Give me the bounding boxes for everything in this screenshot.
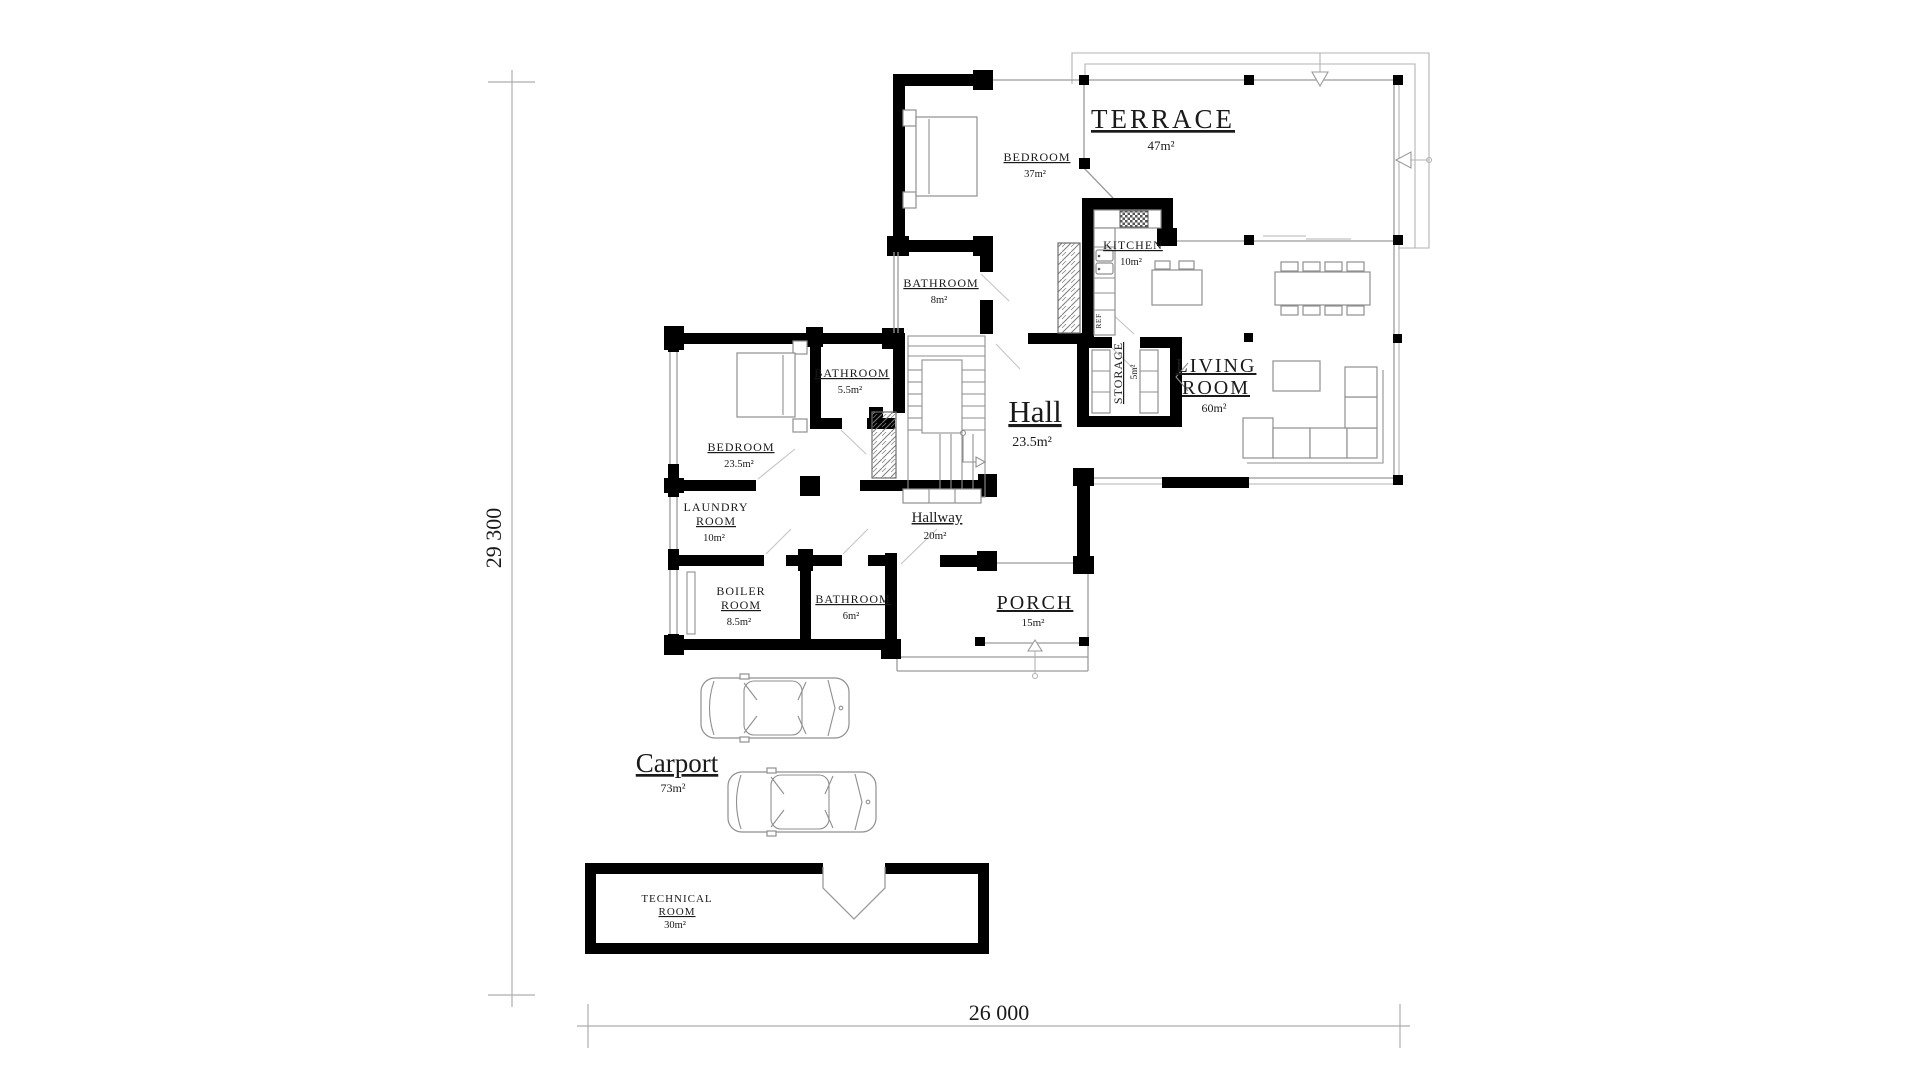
- room-area-bathroom-6: 6m²: [843, 611, 860, 622]
- porch-outline: [897, 563, 1088, 671]
- room-area-bathroom-8: 8m²: [931, 295, 948, 306]
- entry-arrow-porch-icon: [1028, 640, 1042, 679]
- room-label-terrace: TERRACE: [1091, 104, 1235, 134]
- room-label-hall: Hall: [1008, 394, 1061, 429]
- room-label-carport: Carport: [636, 748, 719, 778]
- kitchen-island-icon: [1152, 261, 1202, 305]
- room-label-storage: STORAGE: [1111, 342, 1125, 404]
- room-label-laundry-2: ROOM: [696, 514, 736, 528]
- entry-arrow-right-icon: [1396, 152, 1432, 168]
- dimension-height: 29 300: [481, 70, 535, 1007]
- room-label-technical-2: ROOM: [658, 906, 695, 918]
- room-area-porch: 15m²: [1022, 617, 1046, 629]
- floor-plan-page: 29 300 26 000: [0, 0, 1920, 1080]
- room-area-storage: 5m²: [1130, 364, 1140, 379]
- room-label-technical-1: TECHNICAL: [641, 893, 712, 905]
- room-label-porch: PORCH: [997, 592, 1074, 614]
- storage-shelves: [1092, 350, 1158, 413]
- dimension-height-label: 29 300: [481, 508, 506, 569]
- room-area-living: 60m²: [1202, 401, 1227, 415]
- hallway-cabinet-icon: [903, 489, 981, 503]
- fridge-label: REF: [1094, 313, 1103, 328]
- room-label-bathroom-55: BATHROOM: [814, 366, 889, 380]
- entry-arrow-top-icon: [1312, 53, 1328, 86]
- room-area-bedroom-left: 23.5m²: [724, 459, 754, 470]
- room-label-bathroom-8: BATHROOM: [903, 276, 978, 290]
- room-area-carport: 73m²: [661, 781, 686, 795]
- room-label-boiler-2: ROOM: [721, 598, 761, 612]
- room-label-kitchen: KITCHEN: [1103, 238, 1163, 252]
- room-area-technical: 30m²: [664, 920, 686, 931]
- room-area-bedroom-top: 37m²: [1024, 169, 1046, 180]
- room-area-bathroom-55: 5.5m²: [838, 385, 862, 396]
- room-label-living-2: ROOM: [1182, 377, 1250, 399]
- dimension-width: 26 000: [577, 1000, 1410, 1048]
- room-area-laundry: 10m²: [703, 533, 725, 544]
- wardrobe-icon: [872, 412, 896, 478]
- car-icon: [701, 674, 849, 742]
- room-label-bedroom-left: BEDROOM: [707, 440, 774, 454]
- room-label-boiler-1: BOILER: [716, 584, 765, 598]
- room-area-hallway: 20m²: [924, 530, 948, 542]
- room-area-kitchen: 10m²: [1120, 257, 1142, 268]
- room-area-boiler: 8.5m²: [727, 617, 751, 628]
- coffee-table-icon: [1273, 361, 1320, 391]
- room-label-hallway: Hallway: [912, 510, 963, 526]
- room-label-laundry-1: LAUNDRY: [683, 500, 748, 514]
- room-label-bedroom-top: BEDROOM: [1003, 150, 1070, 164]
- stove-icon: [1120, 211, 1148, 227]
- car-icon: [728, 768, 876, 836]
- gate-opening-icon: [823, 867, 885, 919]
- floor-plan-drawing: 29 300 26 000: [0, 0, 1920, 1080]
- dimension-width-label: 26 000: [969, 1000, 1030, 1025]
- room-label-bathroom-6: BATHROOM: [815, 592, 890, 606]
- wardrobe-icon: [1058, 243, 1080, 333]
- windows: [666, 252, 898, 634]
- stairs-icon: [908, 336, 985, 497]
- room-area-terrace: 47m²: [1147, 138, 1174, 153]
- bed-icon: [737, 341, 807, 432]
- bed-icon: [903, 110, 977, 208]
- room-area-hall: 23.5m²: [1012, 435, 1052, 450]
- dining-table-icon: [1275, 262, 1370, 315]
- room-label-living-1: LIVING: [1176, 355, 1257, 377]
